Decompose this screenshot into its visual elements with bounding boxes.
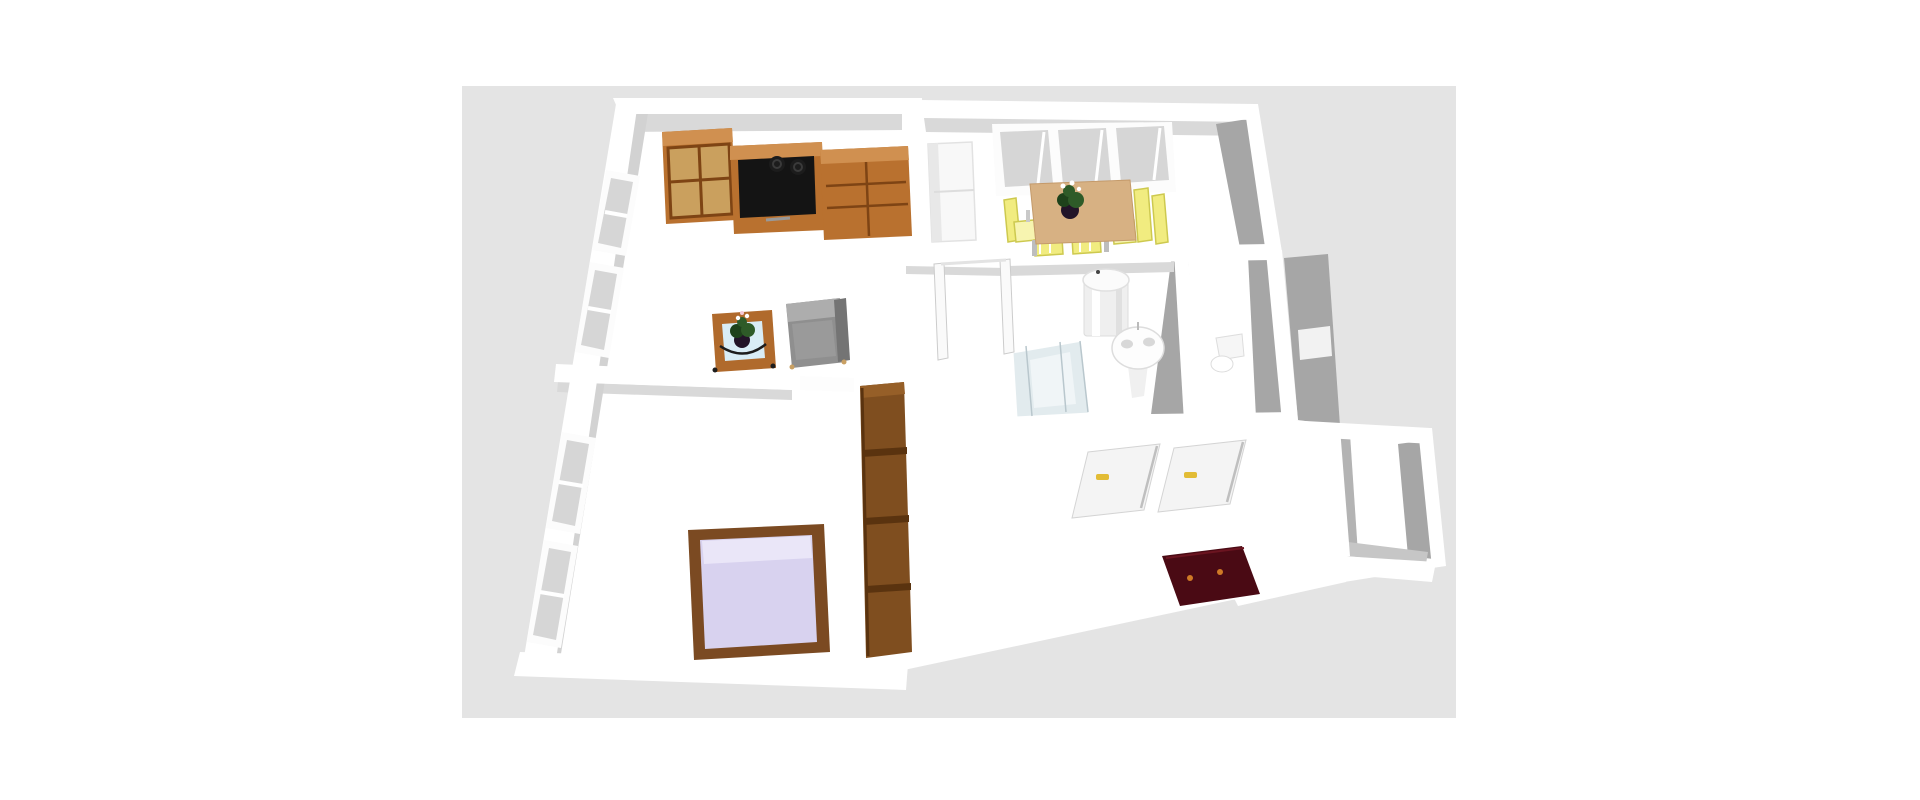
speaker-icon: [769, 156, 785, 172]
floor-plan-3d-view[interactable]: [0, 0, 1920, 800]
door-handle-icon: [1184, 472, 1197, 478]
cabinet-handle-icon: [1187, 575, 1193, 581]
fridge-cabinet[interactable]: [928, 142, 976, 242]
corridor-fixture: [1298, 326, 1332, 360]
shower-tray: [1030, 352, 1076, 408]
render-canvas[interactable]: [0, 0, 1920, 800]
seat-cushion: [792, 320, 836, 360]
armchair[interactable]: [786, 298, 850, 370]
shower[interactable]: [1012, 340, 1090, 418]
door-handle-icon: [1096, 474, 1109, 480]
double-bed[interactable]: [688, 524, 830, 660]
water-heater[interactable]: [1083, 269, 1129, 336]
table-top: [1030, 180, 1136, 244]
tv-stand[interactable]: [730, 142, 826, 234]
bookcase[interactable]: [662, 128, 736, 224]
chair: [1134, 188, 1152, 242]
tall-wardrobe[interactable]: [860, 382, 912, 658]
speaker-icon: [790, 159, 806, 175]
sideboard[interactable]: [820, 146, 912, 240]
chair-seat: [1014, 220, 1036, 242]
cabinet-handle-icon: [1217, 569, 1223, 575]
coffee-table[interactable]: [712, 310, 776, 373]
